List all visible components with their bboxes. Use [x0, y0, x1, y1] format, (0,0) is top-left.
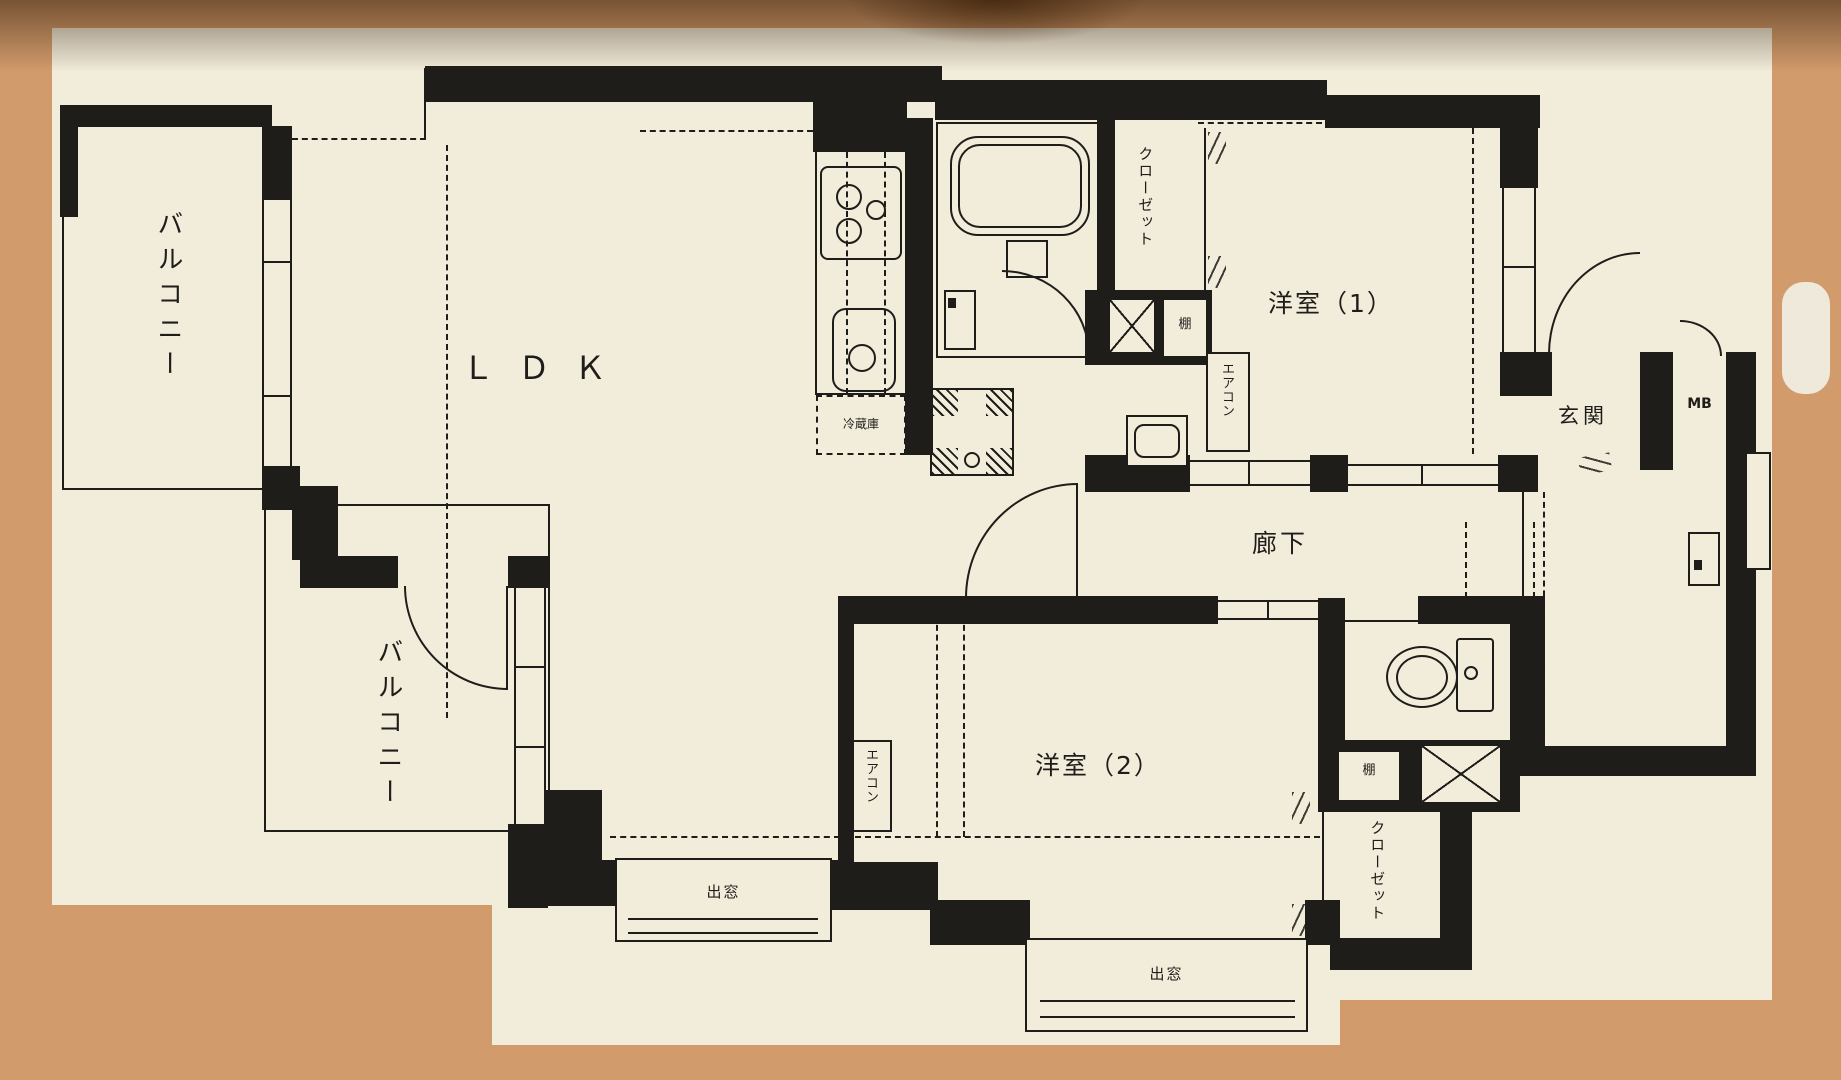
wall-segment: [1545, 746, 1756, 776]
bedroom1-label: 洋室（1）: [1268, 290, 1394, 319]
thin-divider: [424, 68, 426, 140]
wall-segment: [1498, 455, 1538, 492]
entrance-label: 玄関: [1558, 404, 1608, 428]
wall-segment: [1500, 352, 1538, 396]
window-icon: [262, 330, 292, 466]
closet-door-line: [1204, 128, 1206, 292]
aircon2-label: エアコン: [862, 748, 877, 804]
meter-box-label: MB: [1673, 396, 1726, 412]
stove-burner-icon: [836, 218, 862, 244]
ceiling-dashed-line: [936, 615, 938, 837]
bedroom2-label: 洋室（2）: [1035, 752, 1161, 781]
closet-door-line: [1322, 812, 1324, 938]
shelf2-label: 棚: [1337, 764, 1401, 779]
wall-segment: [262, 126, 292, 200]
vanity-bowl: [1134, 424, 1180, 458]
hallway-label: 廊下: [1252, 530, 1308, 559]
drain-icon: [964, 452, 980, 468]
wall-segment: [508, 824, 548, 908]
wall-segment: [1536, 352, 1552, 396]
ceiling-dashed-line: [1198, 122, 1322, 124]
bathtub-inner: [958, 144, 1082, 228]
closet1-label: クローゼット: [1136, 146, 1153, 248]
bay-window-glass: [1040, 1000, 1295, 1002]
entry-step-line: [1522, 492, 1524, 598]
ceiling-dashed-line: [292, 138, 426, 140]
window-icon: [262, 198, 292, 330]
closet2-label: クローゼット: [1368, 820, 1385, 922]
sliding-door-rail: [1218, 600, 1320, 620]
wall-segment: [930, 900, 1030, 945]
door-leaf: [1076, 483, 1078, 598]
hatch-corner: [986, 390, 1012, 416]
washing-machine-pan-icon: [930, 388, 1014, 476]
bay-window2-label: 出窓: [1025, 966, 1308, 983]
wall-segment: [1330, 938, 1472, 970]
door-swing-marks: [1292, 904, 1310, 936]
stove-burner-icon: [836, 184, 862, 210]
wall-segment: [546, 790, 602, 874]
hatch-corner: [932, 448, 958, 474]
ceiling-dashed-line: [640, 130, 813, 132]
wall-segment: [425, 66, 942, 102]
wall-segment: [1310, 455, 1348, 492]
wall-segment: [1440, 812, 1472, 950]
stove-icon: [820, 166, 902, 260]
balcony-upper-label: バルコニー: [152, 210, 182, 385]
window-icon: [1502, 186, 1536, 352]
toilet-bowl-inner: [1396, 655, 1448, 700]
wall-segment: [1500, 128, 1538, 188]
wall-segment: [935, 80, 1327, 120]
ceiling-dashed-line: [1533, 522, 1535, 598]
stove-burner-icon: [866, 200, 886, 220]
intercom-dot: [1694, 560, 1702, 570]
sink-drain-icon: [848, 344, 876, 372]
pipe-space-icon: [1420, 744, 1502, 804]
ceiling-dashed-line: [1472, 128, 1474, 454]
refrigerator-label: 冷蔵庫: [818, 418, 904, 432]
bay-window-glass: [628, 932, 818, 934]
sliding-door-rail: [1190, 460, 1310, 486]
door-swing-marks: [1208, 132, 1226, 164]
intercom-box: [1688, 532, 1720, 586]
toilet-threshold: [1345, 620, 1418, 622]
wall-segment: [1325, 95, 1540, 128]
wall-segment: [838, 596, 1218, 624]
bay-window-glass: [1040, 1016, 1295, 1018]
bay-window-glass: [628, 918, 818, 920]
door-swing-marks: [1208, 256, 1226, 288]
sliding-door-rail: [1348, 464, 1498, 486]
wall-segment: [1640, 352, 1673, 470]
door-swing-marks: [1292, 792, 1310, 824]
ceiling-dashed-line: [855, 836, 1320, 838]
wall-segment: [1418, 596, 1510, 624]
floorplan-photo: バルコニー バルコニー ＬＤＫ 冷蔵庫 棚 クローゼット: [0, 0, 1841, 1080]
aircon1-label: エアコン: [1218, 362, 1233, 418]
toilet-button: [1464, 666, 1478, 680]
wall-segment: [813, 100, 907, 152]
ceiling-dashed-line: [610, 836, 840, 838]
ceiling-dashed-line: [1465, 522, 1467, 598]
entry-step-dashed-line: [1543, 492, 1545, 744]
ldk-label: ＬＤＫ: [462, 350, 630, 387]
ceiling-dashed-line: [963, 615, 965, 837]
window-icon: [514, 588, 546, 828]
wall-segment: [828, 862, 938, 910]
ceiling-dashed-line: [446, 145, 448, 718]
balcony-lower-label: バルコニー: [372, 638, 402, 813]
hatch-corner: [986, 448, 1012, 474]
pipe-duct: [1745, 452, 1771, 570]
wall-segment: [60, 105, 272, 127]
wall-segment: [905, 118, 933, 455]
meter-box: [1673, 378, 1726, 458]
shelf-label: 棚: [1162, 318, 1208, 333]
door-leaf: [506, 586, 508, 690]
wall-sticker: [1782, 282, 1830, 394]
wall-segment: [598, 860, 616, 904]
bay-window1-label: 出窓: [615, 884, 832, 901]
washbasin-tap: [948, 298, 956, 308]
hatch-corner: [932, 390, 958, 416]
pipe-space-icon: [1108, 298, 1156, 354]
